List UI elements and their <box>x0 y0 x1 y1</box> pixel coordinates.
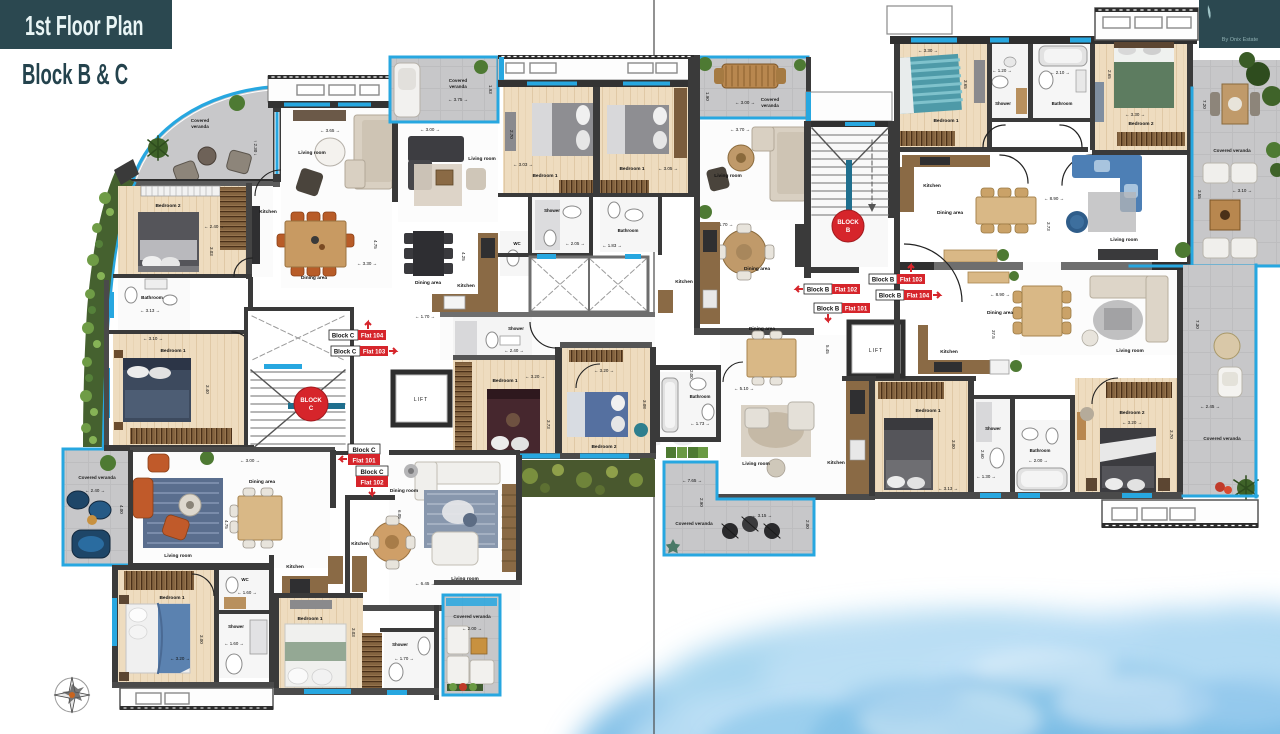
svg-text:Bedroom 1: Bedroom 1 <box>532 173 557 179</box>
svg-text:Bedroom 2: Bedroom 2 <box>591 444 616 450</box>
svg-text:6.05: 6.05 <box>397 510 402 519</box>
svg-text:← 2.00 →: ← 2.00 → <box>462 626 482 631</box>
svg-text:Flat 101: Flat 101 <box>352 458 376 465</box>
svg-text:3.55: 3.55 <box>1197 190 1202 199</box>
svg-text:← 1.83 →: ← 1.83 → <box>602 243 622 248</box>
svg-text:Bathroom: Bathroom <box>141 295 163 300</box>
svg-text:2.90: 2.90 <box>699 498 704 507</box>
svg-text:LIFT: LIFT <box>414 397 428 403</box>
svg-text:← 3.13 →: ← 3.13 → <box>140 308 160 313</box>
svg-text:← 3.10 →: ← 3.10 → <box>1232 188 1252 193</box>
svg-text:B: B <box>846 228 851 234</box>
svg-text:3.70: 3.70 <box>1169 430 1174 439</box>
svg-text:← 3.30 →: ← 3.30 → <box>918 48 938 53</box>
svg-text:← 1.73 →: ← 1.73 → <box>690 421 710 426</box>
svg-text:← 3.20 →: ← 3.20 → <box>594 368 614 373</box>
svg-text:Living room: Living room <box>298 150 325 156</box>
svg-text:← 2.00 →: ← 2.00 → <box>1028 458 1048 463</box>
svg-text:Bedroom 2: Bedroom 2 <box>1119 410 1144 416</box>
svg-text:Block C: Block C <box>332 334 355 340</box>
svg-text:← 2.45 →: ← 2.45 → <box>1200 404 1220 409</box>
svg-text:By Onix Estate: By Onix Estate <box>1222 37 1258 43</box>
svg-text:Shower: Shower <box>508 326 524 331</box>
svg-text:Kitchen: Kitchen <box>940 349 958 355</box>
svg-text:← 8.90 →: ← 8.90 → <box>1044 196 1064 201</box>
svg-text:3.73: 3.73 <box>1046 222 1051 231</box>
svg-text:← 2.40 →: ← 2.40 → <box>204 224 224 229</box>
svg-text:Living room: Living room <box>164 553 191 559</box>
svg-text:3.73: 3.73 <box>546 420 551 429</box>
svg-text:2.60: 2.60 <box>980 450 985 459</box>
svg-text:Kitchen: Kitchen <box>675 279 693 285</box>
svg-text:Bedroom 2: Bedroom 2 <box>1128 121 1153 127</box>
svg-text:← 3.70 →: ← 3.70 → <box>730 127 750 132</box>
svg-text:Covered: Covered <box>191 118 210 123</box>
svg-text:1.93: 1.93 <box>488 85 493 94</box>
svg-text:Block B & C: Block B & C <box>22 59 128 91</box>
svg-text:3.03: 3.03 <box>209 247 214 256</box>
svg-text:← 5.10 →: ← 5.10 → <box>734 386 754 391</box>
svg-text:veranda: veranda <box>761 103 779 108</box>
svg-text:Covered: Covered <box>761 97 780 102</box>
svg-text:2.00: 2.00 <box>805 520 810 529</box>
svg-text:Dining room: Dining room <box>390 488 418 494</box>
svg-text:← 3.65 →: ← 3.65 → <box>320 128 340 133</box>
svg-text:← 3.15 →: ← 3.15 → <box>752 513 772 518</box>
svg-text:← 8.90 →: ← 8.90 → <box>990 292 1010 297</box>
svg-text:Block B: Block B <box>807 288 830 294</box>
svg-text:Bedroom 1: Bedroom 1 <box>915 408 940 414</box>
svg-text:↑ 2.30 ↓: ↑ 2.30 ↓ <box>253 140 258 156</box>
svg-text:← 3.00 →: ← 3.00 → <box>735 100 755 105</box>
svg-text:Shower: Shower <box>544 208 560 213</box>
svg-text:WC: WC <box>513 241 521 246</box>
svg-text:3.40: 3.40 <box>205 385 210 394</box>
svg-text:Covered veranda: Covered veranda <box>1203 436 1241 441</box>
svg-text:← 2.10 →: ← 2.10 → <box>1050 70 1070 75</box>
svg-text:Bedroom 2: Bedroom 2 <box>155 203 180 209</box>
svg-text:1st Floor Plan: 1st Floor Plan <box>25 10 143 41</box>
svg-text:← 3.10 →: ← 3.10 → <box>143 336 163 341</box>
svg-text:Shower: Shower <box>995 101 1011 106</box>
svg-text:Bathroom: Bathroom <box>1052 101 1073 106</box>
svg-text:3.00: 3.00 <box>199 635 204 644</box>
svg-text:← 2.40 →: ← 2.40 → <box>504 348 524 353</box>
svg-text:Dining area: Dining area <box>987 310 1013 316</box>
svg-text:Flat 102: Flat 102 <box>360 480 384 487</box>
svg-text:← 7.65 →: ← 7.65 → <box>682 478 702 483</box>
svg-text:3.03: 3.03 <box>351 628 356 637</box>
svg-text:Covered veranda: Covered veranda <box>78 475 116 480</box>
svg-text:← 3.03 →: ← 3.03 → <box>513 162 533 167</box>
svg-text:LIFT: LIFT <box>869 348 883 354</box>
svg-text:veranda: veranda <box>449 84 467 89</box>
svg-text:BLOCK: BLOCK <box>837 220 859 226</box>
svg-text:Covered veranda: Covered veranda <box>453 614 491 619</box>
svg-text:Dining area: Dining area <box>937 210 963 216</box>
svg-text:← 1.70 →: ← 1.70 → <box>394 656 414 661</box>
svg-text:37.5: 37.5 <box>991 330 996 339</box>
svg-text:Dining area: Dining area <box>301 275 327 281</box>
svg-text:← 1.70 →: ← 1.70 → <box>415 314 435 319</box>
svg-text:Kitchen: Kitchen <box>923 183 941 189</box>
svg-text:Kitchen: Kitchen <box>351 541 369 547</box>
svg-text:4.25: 4.25 <box>461 252 466 261</box>
svg-text:2.00: 2.00 <box>689 370 694 379</box>
svg-text:Living room: Living room <box>1116 348 1143 354</box>
svg-text:← 3.00 →: ← 3.00 → <box>240 458 260 463</box>
svg-text:← 6.45 →: ← 6.45 → <box>415 581 435 586</box>
svg-text:Shower: Shower <box>228 624 244 629</box>
svg-text:BLOCK: BLOCK <box>300 398 322 404</box>
svg-text:3.00: 3.00 <box>951 440 956 449</box>
svg-text:Block C: Block C <box>334 350 357 356</box>
svg-text:Kitchen: Kitchen <box>259 209 277 215</box>
svg-text:Dining area: Dining area <box>744 266 770 272</box>
svg-text:← 1.60 →: ← 1.60 → <box>237 590 257 595</box>
svg-text:Covered veranda: Covered veranda <box>675 521 713 526</box>
svg-text:Block C: Block C <box>360 469 384 476</box>
svg-text:← 1.60 →: ← 1.60 → <box>224 641 244 646</box>
svg-text:veranda: veranda <box>191 124 209 129</box>
svg-text:Kitchen: Kitchen <box>286 564 304 570</box>
svg-text:Shower: Shower <box>392 642 408 647</box>
svg-text:← 3.30 →: ← 3.30 → <box>357 261 377 266</box>
svg-text:Bedroom 1: Bedroom 1 <box>619 166 644 172</box>
svg-text:2.70: 2.70 <box>509 130 514 139</box>
svg-text:Bathroom: Bathroom <box>1030 448 1051 453</box>
svg-text:← 3.75 →: ← 3.75 → <box>448 97 468 102</box>
svg-text:← 3.20 →: ← 3.20 → <box>525 374 545 379</box>
svg-text:← 3.30 →: ← 3.30 → <box>1125 112 1145 117</box>
svg-text:Living room: Living room <box>742 461 769 467</box>
svg-text:Flat 103: Flat 103 <box>363 350 386 356</box>
svg-text:1.90: 1.90 <box>705 92 710 101</box>
svg-text:Bedroom 1: Bedroom 1 <box>297 616 322 622</box>
svg-text:7.20: 7.20 <box>1202 100 1207 109</box>
svg-text:Bedroom 1: Bedroom 1 <box>159 595 184 601</box>
svg-text:Living room: Living room <box>468 156 495 162</box>
svg-text:Shower: Shower <box>985 426 1001 431</box>
svg-text:← 1.30 →: ← 1.30 → <box>976 474 996 479</box>
svg-text:Living room: Living room <box>1110 237 1137 243</box>
svg-text:Dining area: Dining area <box>249 479 275 485</box>
svg-text:← 3.13 →: ← 3.13 → <box>938 486 958 491</box>
svg-text:Flat 102: Flat 102 <box>835 288 858 294</box>
svg-text:Living room: Living room <box>714 173 741 179</box>
svg-text:Flat 103: Flat 103 <box>900 278 923 284</box>
svg-text:Flat 104: Flat 104 <box>907 294 930 300</box>
svg-text:← 3.20 →: ← 3.20 → <box>1122 420 1142 425</box>
svg-text:Block B: Block B <box>872 278 895 284</box>
svg-text:Bathroom: Bathroom <box>690 394 711 399</box>
svg-text:Flat 101: Flat 101 <box>845 307 868 313</box>
svg-text:WC: WC <box>241 577 249 582</box>
svg-text:Bedroom 1: Bedroom 1 <box>492 378 517 384</box>
svg-text:4.00: 4.00 <box>119 505 124 514</box>
svg-text:Covered: Covered <box>449 78 468 83</box>
svg-text:Dining area: Dining area <box>415 280 441 286</box>
svg-text:← 3.05 →: ← 3.05 → <box>658 166 678 171</box>
svg-text:7.30: 7.30 <box>1195 320 1200 329</box>
svg-text:Block B: Block B <box>879 294 902 300</box>
svg-text:Dining area: Dining area <box>749 326 775 332</box>
svg-text:C: C <box>309 406 314 412</box>
svg-text:← 2.05 →: ← 2.05 → <box>565 241 585 246</box>
svg-text:← 2.40 →: ← 2.40 → <box>85 488 105 493</box>
svg-text:Bathroom: Bathroom <box>618 228 639 233</box>
svg-text:← 3.00 →: ← 3.00 → <box>420 127 440 132</box>
svg-text:Kitchen: Kitchen <box>457 283 475 289</box>
svg-text:4.75: 4.75 <box>373 240 378 249</box>
svg-text:2.65: 2.65 <box>1107 70 1112 79</box>
svg-text:Block B: Block B <box>817 307 840 313</box>
svg-text:Flat 104: Flat 104 <box>361 334 384 340</box>
svg-text:← 1.20 →: ← 1.20 → <box>992 68 1012 73</box>
svg-text:3.65: 3.65 <box>963 80 968 89</box>
svg-text:← 3.20 →: ← 3.20 → <box>170 656 190 661</box>
svg-text:Block C: Block C <box>352 447 376 454</box>
svg-text:Bedroom 1: Bedroom 1 <box>933 118 958 124</box>
svg-text:Kitchen: Kitchen <box>827 460 845 466</box>
svg-text:Covered veranda: Covered veranda <box>1213 148 1251 153</box>
svg-text:3.08: 3.08 <box>642 400 647 409</box>
svg-text:5.45: 5.45 <box>825 345 830 354</box>
svg-text:Bedroom 1: Bedroom 1 <box>160 348 185 354</box>
svg-text:4.75: 4.75 <box>224 520 229 529</box>
